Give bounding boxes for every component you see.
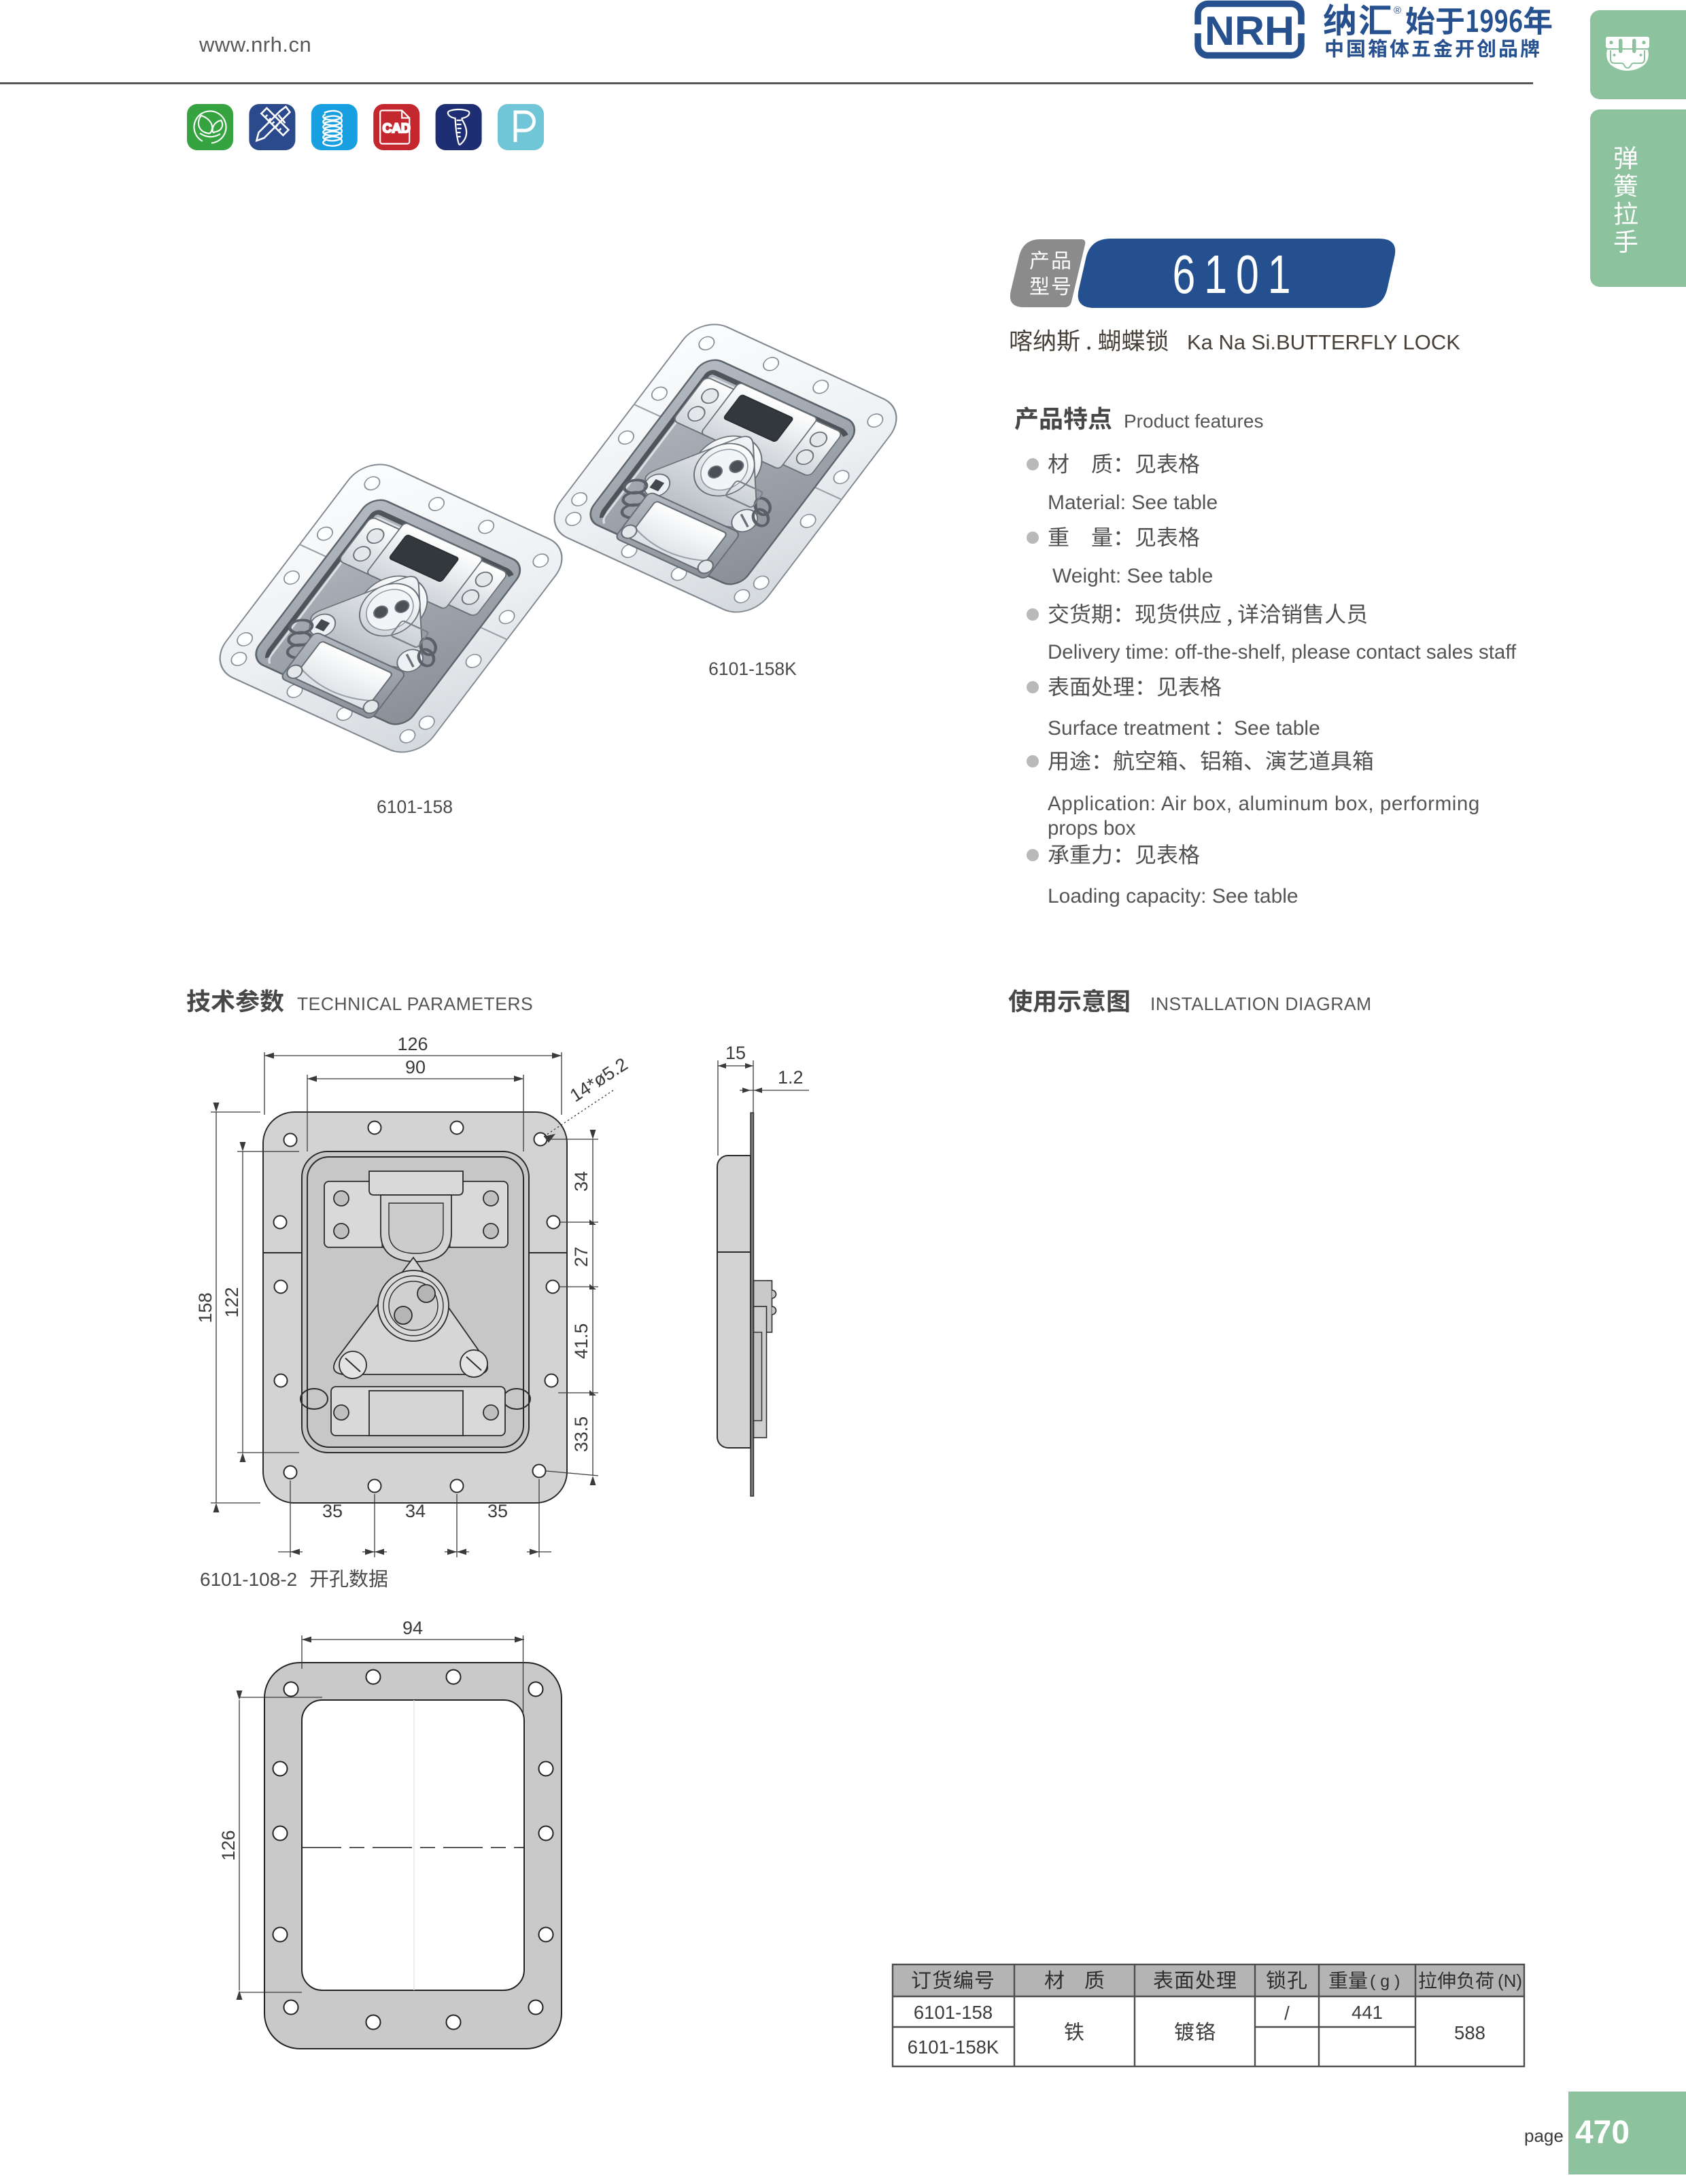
svg-text:6101-158: 6101-158 — [377, 797, 453, 817]
svg-text:35: 35 — [487, 1501, 508, 1521]
svg-text:6101-158: 6101-158 — [914, 2002, 993, 2023]
svg-text:TECHNICAL PARAMETERS: TECHNICAL PARAMETERS — [297, 994, 533, 1014]
svg-text:Loading capacity: See table: Loading capacity: See table — [1048, 885, 1298, 907]
svg-text:33.5: 33.5 — [571, 1417, 591, 1453]
svg-text:94: 94 — [402, 1618, 423, 1638]
svg-text:Product features: Product features — [1124, 411, 1263, 432]
svg-text:27: 27 — [571, 1247, 591, 1267]
svg-text:CAD: CAD — [383, 122, 411, 136]
svg-text:/: / — [1284, 2003, 1290, 2024]
svg-text:90: 90 — [405, 1057, 426, 1077]
svg-text:41.5: 41.5 — [571, 1323, 591, 1359]
svg-text:NRH: NRH — [1205, 8, 1294, 54]
svg-text:Application: Air box, aluminum: Application: Air box, aluminum box, perf… — [1048, 793, 1480, 815]
svg-text:14*ø5.2: 14*ø5.2 — [566, 1054, 632, 1106]
svg-text:(N): (N) — [1498, 1971, 1522, 1991]
svg-text:15: 15 — [725, 1043, 746, 1063]
svg-text:Surface treatment: Surface treatment — [1048, 717, 1210, 740]
svg-text:www.nrh.cn: www.nrh.cn — [199, 33, 311, 56]
svg-text:470: 470 — [1575, 2115, 1630, 2151]
svg-text:6101-158K: 6101-158K — [708, 659, 797, 679]
svg-text:34: 34 — [405, 1501, 426, 1521]
svg-text:( g ): ( g ) — [1370, 1972, 1400, 1991]
svg-text:6101-108-2: 6101-108-2 — [200, 1569, 297, 1590]
svg-text:441: 441 — [1352, 2002, 1383, 2023]
svg-text:Weight: See table: Weight: See table — [1052, 565, 1213, 587]
svg-text:props box: props box — [1048, 817, 1136, 839]
svg-text:1.2: 1.2 — [778, 1067, 804, 1088]
svg-text:588: 588 — [1454, 2022, 1485, 2043]
svg-text:6101-158K: 6101-158K — [908, 2036, 999, 2058]
svg-text:Ka Na Si.BUTTERFLY LOCK: Ka Na Si.BUTTERFLY LOCK — [1187, 330, 1460, 354]
svg-text:34: 34 — [571, 1171, 591, 1192]
svg-text:See table: See table — [1234, 717, 1320, 740]
svg-text:35: 35 — [322, 1501, 343, 1521]
svg-text:®: ® — [1394, 5, 1401, 16]
svg-text:page: page — [1524, 2126, 1564, 2146]
svg-text:Material: See table: Material: See table — [1048, 491, 1218, 514]
svg-text:Delivery time: off-the-shelf,: Delivery time: off-the-shelf, please con… — [1048, 641, 1517, 663]
svg-text:158: 158 — [195, 1292, 216, 1323]
svg-text:126: 126 — [218, 1830, 239, 1860]
svg-text:122: 122 — [222, 1287, 242, 1317]
svg-text:INSTALLATION DIAGRAM: INSTALLATION DIAGRAM — [1150, 994, 1372, 1014]
svg-text:126: 126 — [397, 1034, 428, 1054]
svg-text:6101: 6101 — [1173, 245, 1300, 305]
